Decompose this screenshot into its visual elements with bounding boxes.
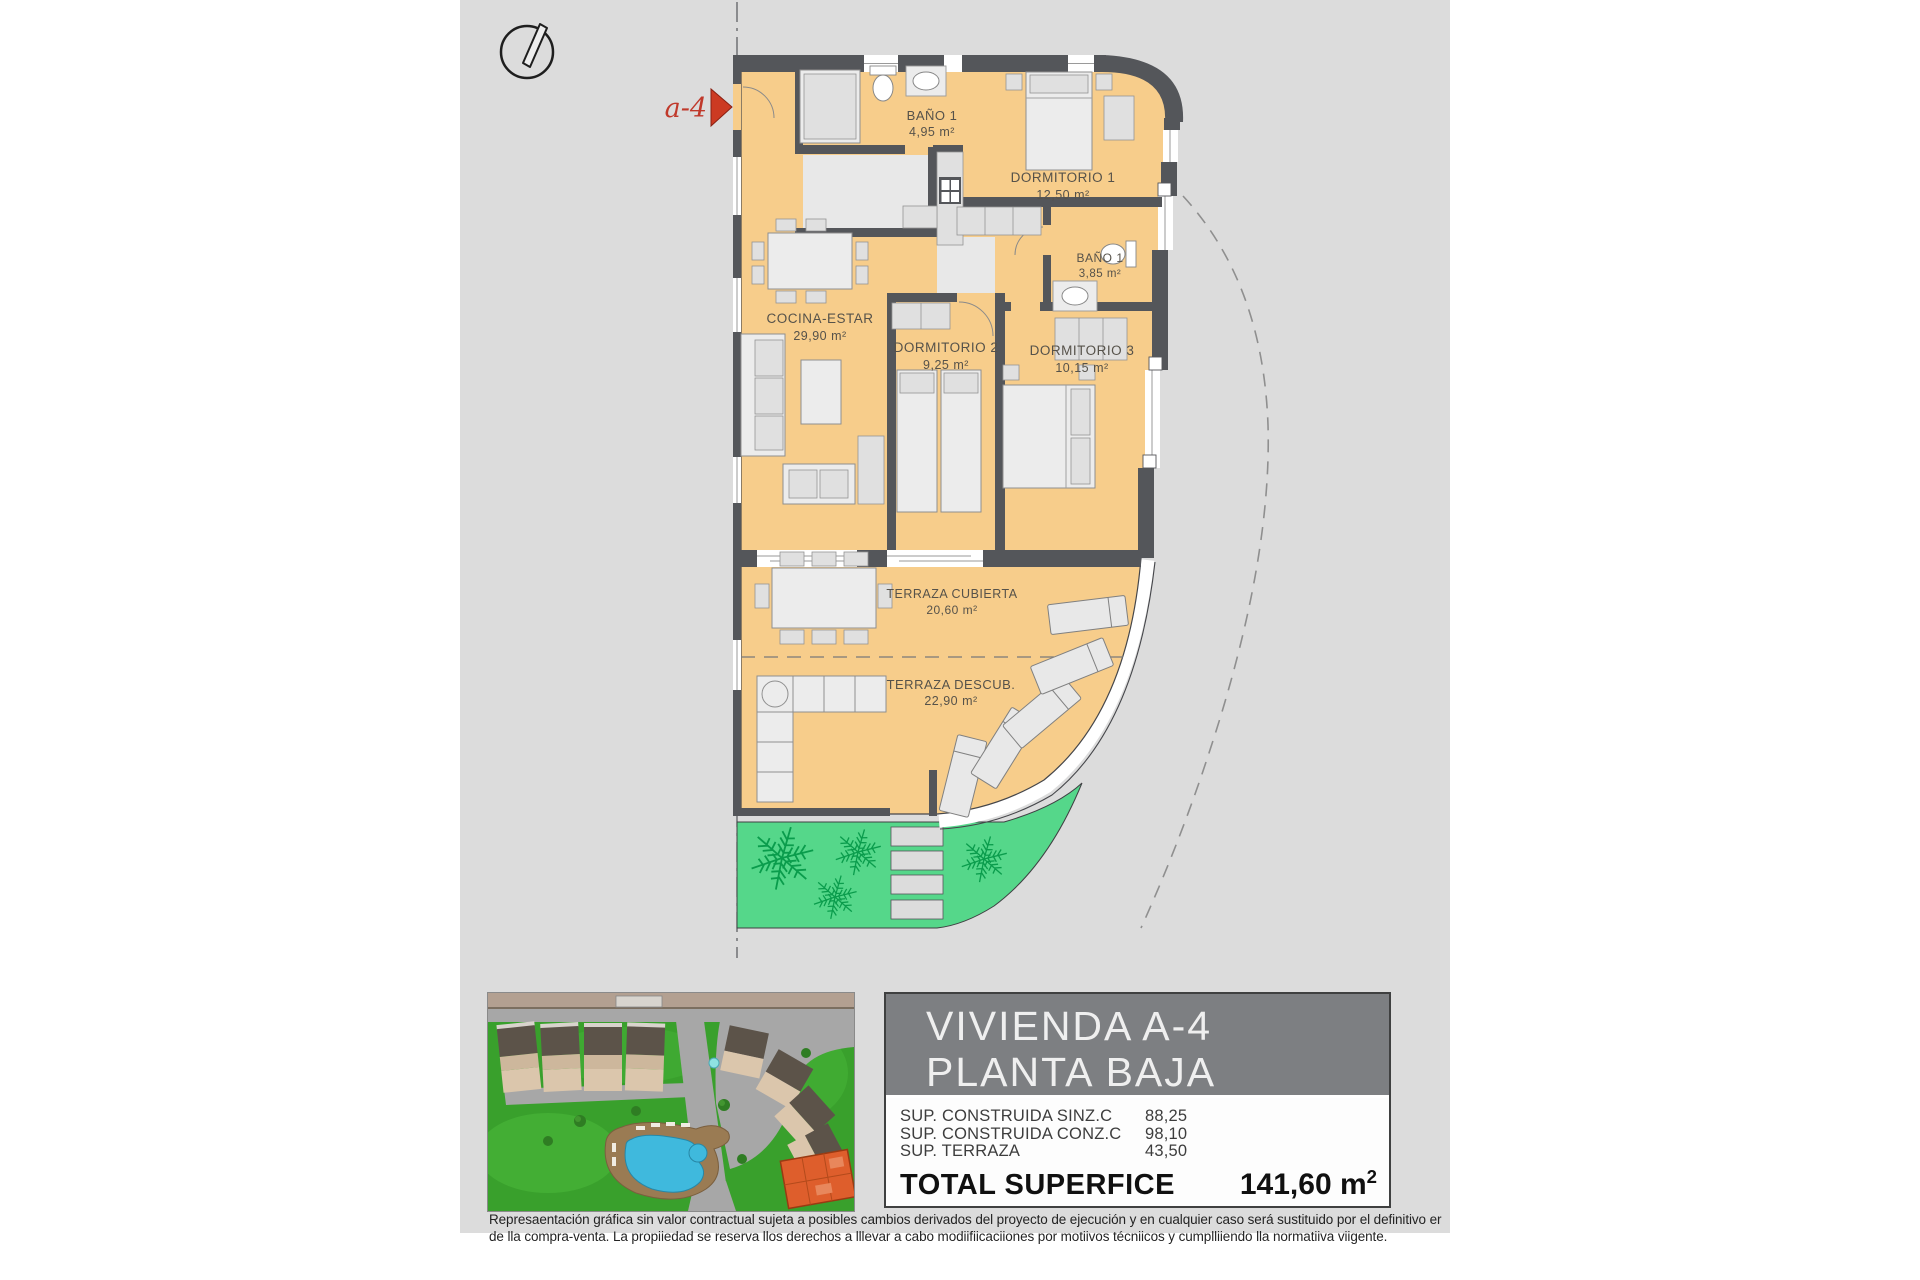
surface-row: SUP. CONSTRUIDA SINZ.C88,25 <box>900 1108 1389 1126</box>
surface-row: SUP. CONSTRUIDA CONZ.C98,10 <box>900 1126 1389 1144</box>
plan-title-line2: PLANTA BAJA <box>926 1050 1389 1096</box>
sink-icon <box>1062 287 1088 305</box>
disclaimer-text: Represaentación gráfica sin valor contra… <box>489 1212 1441 1245</box>
surface-value: 43,50 <box>1145 1142 1187 1160</box>
tv-unit-icon <box>858 436 884 504</box>
surface-row: SUP. TERRAZA43,50 <box>900 1143 1389 1161</box>
disclaimer-line1: Represaentación gráfica sin valor contra… <box>489 1212 1441 1229</box>
surface-value: 98,10 <box>1145 1125 1187 1143</box>
total-surface-value: 141,60 m2 <box>1240 1166 1377 1202</box>
room-area-dormitorio2: 9,25 m² <box>923 358 969 372</box>
section-marker-label: a-4 <box>665 93 707 124</box>
round-table-icon <box>762 681 788 707</box>
surface-value: 88,25 <box>1145 1107 1187 1125</box>
surface-label: SUP. CONSTRUIDA CONZ.C <box>900 1126 1145 1144</box>
room-label-bano2: BAÑO 1 <box>1076 251 1123 265</box>
brochure-page: BAÑO 1 4,95 m² DORMITORIO 1 12,50 m² BAÑ… <box>0 0 1920 1280</box>
room-area-dormitorio1: 12,50 m² <box>1036 188 1089 202</box>
sink-icon <box>913 72 939 90</box>
room-area-bano2: 3,85 m² <box>1079 268 1122 280</box>
plan-title-block: VIVIENDA A-4 PLANTA BAJA <box>886 994 1389 1098</box>
site-plan-thumbnail <box>487 992 855 1212</box>
room-label-dormitorio1: DORMITORIO 1 <box>1011 170 1116 185</box>
room-label-dormitorio2: DORMITORIO 2 <box>894 340 999 355</box>
room-area-bano1: 4,95 m² <box>909 125 955 139</box>
room-area-terraza-cubierta: 20,60 m² <box>926 603 977 617</box>
room-area-terraza-descubierta: 22,90 m² <box>924 694 977 708</box>
disclaimer-line2: de lla compra-venta. La propiiedad se re… <box>489 1229 1441 1246</box>
site-plan-image <box>488 993 854 1211</box>
gate-icon <box>616 996 662 1007</box>
room-label-cocina: COCINA-ESTAR <box>766 311 873 326</box>
total-surface-row: TOTAL SUPERFICE 141,60 m2 <box>900 1166 1377 1202</box>
plan-title-line1: VIVIENDA A-4 <box>926 1004 1389 1050</box>
room-label-terraza-descubierta: TERRAZA DESCUB. <box>887 677 1016 692</box>
room-label-bano1: BAÑO 1 <box>907 108 958 123</box>
total-surface-label: TOTAL SUPERFICE <box>900 1169 1175 1202</box>
room-area-dormitorio3: 10,15 m² <box>1055 361 1108 375</box>
room-label-dormitorio3: DORMITORIO 3 <box>1030 343 1135 358</box>
room-label-terraza-cubierta: TERRAZA CUBIERTA <box>886 587 1017 601</box>
coffee-table-icon <box>801 360 841 424</box>
toilet-icon <box>873 75 893 101</box>
surface-label: SUP. TERRAZA <box>900 1143 1145 1161</box>
surface-table: SUP. CONSTRUIDA SINZ.C88,25 SUP. CONSTRU… <box>886 1098 1389 1205</box>
info-panel: VIVIENDA A-4 PLANTA BAJA SUP. CONSTRUIDA… <box>884 992 1391 1208</box>
fountain-icon <box>709 1058 719 1068</box>
surface-label: SUP. CONSTRUIDA SINZ.C <box>900 1108 1145 1126</box>
dining-table-icon <box>768 233 852 289</box>
room-area-cocina: 29,90 m² <box>793 329 846 343</box>
outdoor-table-icon <box>772 568 876 628</box>
